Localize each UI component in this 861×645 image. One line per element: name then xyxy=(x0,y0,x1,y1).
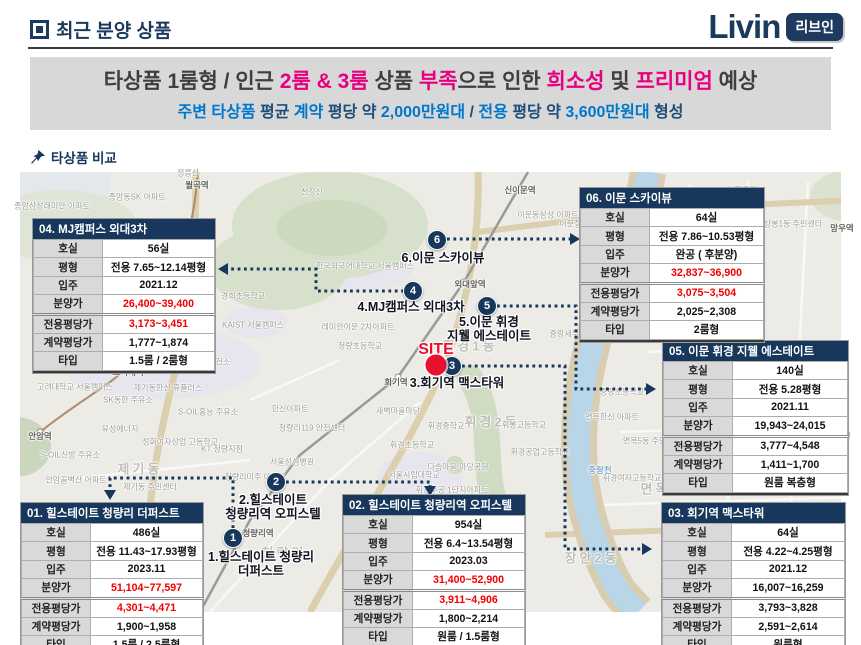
map-marker-1[interactable]: 1 xyxy=(223,528,243,548)
map-marker-5[interactable]: 5 xyxy=(477,296,497,316)
row-label: 계약평당가 xyxy=(581,302,650,320)
row-label: 계약평당가 xyxy=(344,609,413,627)
map-marker-label-1: 1.힐스테이트 청량리 더퍼스트 xyxy=(208,550,314,579)
map-marker-label-6: 6.이문 스카이뷰 xyxy=(402,251,485,265)
row-value: 2룸형 xyxy=(650,321,764,339)
table-row: 평형전용 11.43~17.93평형 xyxy=(22,542,203,560)
row-label: 평형 xyxy=(22,542,91,560)
table-row: 타입2룸형 xyxy=(581,321,764,339)
row-label: 타입 xyxy=(664,474,733,492)
table-row: 분양가19,943~24,015 xyxy=(664,417,848,436)
row-value: 1.5룸 / 2룸형 xyxy=(103,352,215,370)
row-value: 51,104~77,597 xyxy=(91,579,203,598)
pushpin-icon xyxy=(30,150,45,165)
row-value: 2021.12 xyxy=(103,276,215,294)
connector-arrowhead-6 xyxy=(104,490,116,500)
brand-logo: Livin 리브인 xyxy=(708,8,843,46)
row-value: 31,400~52,900 xyxy=(413,571,525,590)
headline-text-part: / xyxy=(465,104,478,121)
row-value: 2,025~2,308 xyxy=(650,302,764,320)
connector-line-2 xyxy=(226,269,404,291)
property-table-body: 호실56실평형전용 7.65~12.14평형입주2021.12분양가26,400… xyxy=(33,239,215,371)
headline-text-part: 부족 xyxy=(419,70,458,93)
table-row: 계약평당가2,025~2,308 xyxy=(581,302,764,320)
table-row: 전용평당가3,075~3,504 xyxy=(581,283,764,302)
headline-text-part: 및 xyxy=(605,70,636,93)
row-value: 원룸 / 1.5룸형 xyxy=(413,628,525,645)
connector-arrowhead-2 xyxy=(218,263,228,275)
connector-arrowhead-4 xyxy=(642,543,652,555)
property-table-title: 04. MJ캠퍼스 외대3차 xyxy=(33,219,215,239)
table-row: 입주2021.12 xyxy=(663,560,845,578)
headline-text-part: 전용 xyxy=(478,104,507,121)
row-label: 입주 xyxy=(581,245,650,263)
row-value: 954실 xyxy=(413,516,525,534)
property-table-04: 04. MJ캠퍼스 외대3차호실56실평형전용 7.65~12.14평형입주20… xyxy=(33,219,215,373)
row-value: 원룸 복층형 xyxy=(733,474,848,492)
table-row: 평형전용 7.86~10.53평형 xyxy=(581,227,764,245)
headline-text-part: 평당 약 xyxy=(508,104,566,121)
property-table-body: 호실486실평형전용 11.43~17.93평형입주2023.11분양가51,1… xyxy=(21,523,203,645)
row-value: 전용 7.65~12.14평형 xyxy=(103,258,215,276)
row-label: 타입 xyxy=(34,352,103,370)
row-label: 평형 xyxy=(663,542,732,560)
table-row: 전용평당가3,777~4,548 xyxy=(664,436,848,455)
row-label: 분양가 xyxy=(581,264,650,283)
table-row: 평형전용 6.4~13.54평형 xyxy=(344,534,525,552)
connector-arrowhead-3 xyxy=(646,383,656,395)
headline-text-part: 희소성 xyxy=(547,70,605,93)
row-label: 입주 xyxy=(664,398,733,416)
row-label: 분양가 xyxy=(22,579,91,598)
table-row: 타입1.5룸 / 2룸형 xyxy=(34,352,215,370)
row-label: 평형 xyxy=(34,258,103,276)
row-label: 평형 xyxy=(581,227,650,245)
table-row: 평형전용 4.22~4.25평형 xyxy=(663,542,845,560)
property-table-body: 호실64실평형전용 7.86~10.53평형입주완공 ( 후분양)분양가32,8… xyxy=(580,208,764,340)
row-label: 호실 xyxy=(664,362,733,380)
row-value: 전용 4.22~4.25평형 xyxy=(732,542,845,560)
row-value: 원룸형 xyxy=(732,636,845,645)
table-row: 타입원룸형 xyxy=(663,636,845,645)
row-label: 타입 xyxy=(581,321,650,339)
property-table-title: 05. 이문 휘경 지웰 에스테이트 xyxy=(663,341,848,361)
row-label: 계약평당가 xyxy=(22,617,91,635)
table-row: 타입원룸 복층형 xyxy=(664,474,848,492)
property-table-body: 호실140실평형전용 5.28평형입주2021.11분양가19,943~24,0… xyxy=(663,361,848,493)
property-table-02: 02. 힐스테이트 청량리역 오피스텔호실954실평형전용 6.4~13.54평… xyxy=(343,495,525,645)
page-title: 최근 분양 상품 xyxy=(30,16,171,43)
table-row: 호실64실 xyxy=(581,209,764,227)
brand-wordmark: Livin xyxy=(708,8,780,46)
row-value: 1,900~1,958 xyxy=(91,617,203,635)
table-row: 계약평당가2,591~2,614 xyxy=(663,617,845,635)
headline-text-part: 으로 인한 xyxy=(458,70,547,93)
row-value: 2023.03 xyxy=(413,552,525,570)
headline-line1: 타상품 1룸형 / 인근 2룸 & 3룸 상품 부족으로 인한 희소성 및 프리… xyxy=(104,65,758,95)
site-dot xyxy=(426,355,447,376)
headline-banner: 타상품 1룸형 / 인근 2룸 & 3룸 상품 부족으로 인한 희소성 및 프리… xyxy=(30,57,831,130)
row-label: 전용평당가 xyxy=(22,598,91,617)
table-row: 호실954실 xyxy=(344,516,525,534)
headline-text-part: 타상품 1룸형 / 인근 xyxy=(104,70,280,93)
table-row: 호실140실 xyxy=(664,362,848,380)
row-value: 1.5룸 / 2.5룸형 xyxy=(91,636,203,645)
row-value: 3,075~3,504 xyxy=(650,283,764,302)
row-label: 입주 xyxy=(34,276,103,294)
row-label: 계약평당가 xyxy=(664,455,733,473)
row-label: 계약평당가 xyxy=(663,617,732,635)
map-marker-4[interactable]: 4 xyxy=(403,281,423,301)
row-label: 호실 xyxy=(663,524,732,542)
row-value: 3,911~4,906 xyxy=(413,590,525,609)
property-table-title: 03. 회기역 맥스타워 xyxy=(662,503,845,523)
row-value: 전용 7.86~10.53평형 xyxy=(650,227,764,245)
property-table-06: 06. 이문 스카이뷰호실64실평형전용 7.86~10.53평형입주완공 ( … xyxy=(580,188,764,342)
row-label: 타입 xyxy=(663,636,732,645)
headline-text-part: 상품 xyxy=(369,70,419,93)
table-row: 전용평당가3,173~3,451 xyxy=(34,314,215,333)
table-row: 호실56실 xyxy=(34,240,215,258)
table-row: 계약평당가1,777~1,874 xyxy=(34,333,215,351)
row-value: 16,007~16,259 xyxy=(732,579,845,598)
row-value: 26,400~39,400 xyxy=(103,295,215,314)
map-marker-label-2: 2.힐스테이트 청량리역 오피스텔 xyxy=(225,493,320,522)
square-bullet-icon xyxy=(30,20,49,39)
row-value: 2,591~2,614 xyxy=(732,617,845,635)
map-marker-label-4: 4.MJ캠퍼스 외대3차 xyxy=(357,300,464,314)
row-value: 56실 xyxy=(103,240,215,258)
headline-text-part: 평당 약 xyxy=(323,104,381,121)
map-marker-6[interactable]: 6 xyxy=(427,230,447,250)
headline-text-part: 계약 xyxy=(294,104,323,121)
page-title-text: 최근 분양 상품 xyxy=(56,16,171,43)
connector-arrowhead-1 xyxy=(570,233,580,245)
property-table-body: 호실64실평형전용 4.22~4.25평형입주2021.12분양가16,007~… xyxy=(662,523,845,645)
table-row: 호실486실 xyxy=(22,524,203,542)
table-row: 호실64실 xyxy=(663,524,845,542)
connector-line-5 xyxy=(286,482,430,486)
row-label: 호실 xyxy=(22,524,91,542)
row-label: 분양가 xyxy=(663,579,732,598)
row-value: 64실 xyxy=(650,209,764,227)
row-value: 140실 xyxy=(733,362,848,380)
table-row: 분양가32,837~36,900 xyxy=(581,264,764,283)
headline-text-part: 프리미엄 xyxy=(636,70,713,93)
headline-text-part: 3,600만원대 xyxy=(565,104,649,121)
headline-line2: 주변 타상품 평균 계약 평당 약 2,000만원대 / 전용 평당 약 3,6… xyxy=(178,98,684,122)
table-row: 분양가31,400~52,900 xyxy=(344,571,525,590)
row-value: 486실 xyxy=(91,524,203,542)
row-value: 32,837~36,900 xyxy=(650,264,764,283)
table-row: 계약평당가1,411~1,700 xyxy=(664,455,848,473)
row-value: 3,777~4,548 xyxy=(733,436,848,455)
map-marker-2[interactable]: 2 xyxy=(266,472,286,492)
table-row: 평형전용 7.65~12.14평형 xyxy=(34,258,215,276)
property-table-title: 01. 힐스테이트 청량리 더퍼스트 xyxy=(21,503,203,523)
row-value: 전용 5.28평형 xyxy=(733,380,848,398)
row-label: 호실 xyxy=(581,209,650,227)
row-label: 입주 xyxy=(22,560,91,578)
table-row: 입주2021.11 xyxy=(664,398,848,416)
table-row: 전용평당가3,793~3,828 xyxy=(663,598,845,617)
headline-text-part: 평균 xyxy=(260,104,294,121)
row-label: 전용평당가 xyxy=(34,314,103,333)
row-label: 분양가 xyxy=(344,571,413,590)
row-label: 입주 xyxy=(344,552,413,570)
row-value: 3,793~3,828 xyxy=(732,598,845,617)
row-label: 타입 xyxy=(344,628,413,645)
row-value: 4,301~4,471 xyxy=(91,598,203,617)
row-label: 전용평당가 xyxy=(581,283,650,302)
table-row: 전용평당가4,301~4,471 xyxy=(22,598,203,617)
property-table-title: 06. 이문 스카이뷰 xyxy=(580,188,764,208)
table-row: 분양가51,104~77,597 xyxy=(22,579,203,598)
table-row: 계약평당가1,900~1,958 xyxy=(22,617,203,635)
property-table-05: 05. 이문 휘경 지웰 에스테이트호실140실평형전용 5.28평형입주202… xyxy=(663,341,848,495)
row-value: 1,800~2,214 xyxy=(413,609,525,627)
table-row: 타입1.5룸 / 2.5룸형 xyxy=(22,636,203,645)
headline-text-part: 예상 xyxy=(713,70,757,93)
row-value: 3,173~3,451 xyxy=(103,314,215,333)
row-label: 계약평당가 xyxy=(34,333,103,351)
slide-page: 최근 분양 상품 Livin 리브인 타상품 1룸형 / 인근 2룸 & 3룸 … xyxy=(0,0,861,645)
row-label: 분양가 xyxy=(34,295,103,314)
table-row: 타입원룸 / 1.5룸형 xyxy=(344,628,525,645)
table-row: 평형전용 5.28평형 xyxy=(664,380,848,398)
row-value: 1,777~1,874 xyxy=(103,333,215,351)
section-label-text: 타상품 비교 xyxy=(51,147,117,167)
section-label: 타상품 비교 xyxy=(30,147,117,167)
row-label: 평형 xyxy=(664,380,733,398)
table-row: 입주2023.11 xyxy=(22,560,203,578)
property-table-01: 01. 힐스테이트 청량리 더퍼스트호실486실평형전용 11.43~17.93… xyxy=(21,503,203,645)
row-label: 전용평당가 xyxy=(664,436,733,455)
headline-text-part: 2룸 & 3룸 xyxy=(280,70,369,93)
row-label: 전용평당가 xyxy=(344,590,413,609)
row-value: 완공 ( 후분양) xyxy=(650,245,764,263)
row-value: 전용 6.4~13.54평형 xyxy=(413,534,525,552)
property-table-title: 02. 힐스테이트 청량리역 오피스텔 xyxy=(343,495,525,515)
row-value: 전용 11.43~17.93평형 xyxy=(91,542,203,560)
headline-text-part: 2,000만원대 xyxy=(381,104,465,121)
map-marker-label-5: 5.이문 휘경 지웰 에스테이트 xyxy=(447,315,531,344)
row-label: 평형 xyxy=(344,534,413,552)
headline-text-part: 주변 타상품 xyxy=(178,104,261,121)
row-label: 분양가 xyxy=(664,417,733,436)
row-label: 호실 xyxy=(344,516,413,534)
row-value: 1,411~1,700 xyxy=(733,455,848,473)
map-marker-label-3: 3.회기역 맥스타워 xyxy=(410,376,504,390)
property-table-03: 03. 회기역 맥스타워호실64실평형전용 4.22~4.25평형입주2021.… xyxy=(662,503,845,645)
table-row: 계약평당가1,800~2,214 xyxy=(344,609,525,627)
row-value: 2021.12 xyxy=(732,560,845,578)
table-row: 입주2023.03 xyxy=(344,552,525,570)
row-label: 입주 xyxy=(663,560,732,578)
brand-badge: 리브인 xyxy=(786,13,843,41)
row-label: 호실 xyxy=(34,240,103,258)
row-value: 2021.11 xyxy=(733,398,848,416)
table-row: 입주완공 ( 후분양) xyxy=(581,245,764,263)
table-row: 입주2021.12 xyxy=(34,276,215,294)
header-divider xyxy=(28,47,833,49)
row-label: 타입 xyxy=(22,636,91,645)
row-value: 64실 xyxy=(732,524,845,542)
property-table-body: 호실954실평형전용 6.4~13.54평형입주2023.03분양가31,400… xyxy=(343,515,525,645)
row-value: 2023.11 xyxy=(91,560,203,578)
row-label: 전용평당가 xyxy=(663,598,732,617)
table-row: 분양가26,400~39,400 xyxy=(34,295,215,314)
row-value: 19,943~24,015 xyxy=(733,417,848,436)
table-row: 분양가16,007~16,259 xyxy=(663,579,845,598)
table-row: 전용평당가3,911~4,906 xyxy=(344,590,525,609)
headline-text-part: 형성 xyxy=(650,104,684,121)
